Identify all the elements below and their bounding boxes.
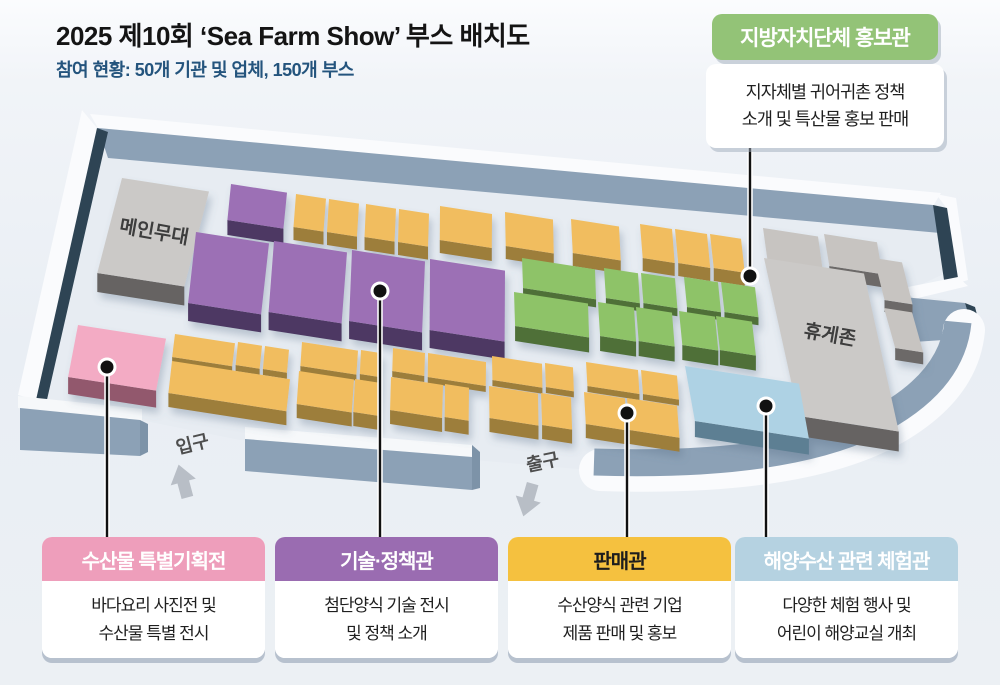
info-box-line1: 지자체별 귀어귀촌 정책 bbox=[746, 79, 905, 106]
legend-card-line1: 바다요리 사진전 및 bbox=[91, 592, 216, 619]
info-box-body: 지자체별 귀어귀촌 정책 소개 및 특산물 홍보 판매 bbox=[706, 64, 944, 148]
booth-block-green bbox=[636, 307, 675, 362]
booth-block-purple bbox=[188, 232, 269, 332]
legend-card-line1: 다양한 체험 행사 및 bbox=[782, 592, 910, 619]
legend-card-line2: 및 정책 소개 bbox=[346, 620, 427, 647]
booth-block-yellow bbox=[505, 212, 554, 266]
booth-block-yellow bbox=[398, 209, 429, 260]
legend-card-body: 첨단양식 기술 전시 및 정책 소개 bbox=[275, 581, 498, 658]
booth-block-yellow bbox=[263, 346, 289, 379]
info-box-header: 지방자치단체 홍보관 bbox=[712, 14, 938, 60]
booth-block-yellow bbox=[489, 386, 538, 440]
callout-dot bbox=[760, 400, 773, 413]
infographic-page: 2025 제10회 ‘Sea Farm Show’ 부스 배치도 참여 현황: … bbox=[0, 0, 1000, 685]
legend-card-experience: 해양수산 관련 체험관 다양한 체험 행사 및 어린이 해양교실 개최 bbox=[735, 537, 958, 658]
booth-block-yellow bbox=[327, 199, 359, 250]
booth-block-yellow bbox=[627, 398, 679, 452]
callout-dot bbox=[374, 285, 387, 298]
booth-block-yellow bbox=[236, 342, 262, 375]
booth-block-yellow bbox=[390, 377, 443, 432]
legend-card-body: 바다요리 사진전 및 수산물 특별 전시 bbox=[42, 581, 265, 658]
legend-card-line2: 제품 판매 및 홍보 bbox=[563, 620, 677, 647]
booth-block-yellow bbox=[365, 204, 396, 255]
callout-dot bbox=[621, 407, 634, 420]
legend-card-body: 수산양식 관련 기업 제품 판매 및 홍보 bbox=[508, 581, 731, 658]
legend-card-header: 수산물 특별기획전 bbox=[42, 537, 265, 581]
booth-block-pink bbox=[68, 325, 166, 408]
booth-block-yellow bbox=[353, 379, 381, 430]
booth-block-purple bbox=[349, 250, 425, 350]
legend-card-line1: 첨단양식 기술 전시 bbox=[324, 592, 449, 619]
legend-card-body: 다양한 체험 행사 및 어린이 해양교실 개최 bbox=[735, 581, 958, 658]
legend-card-special-exhibit: 수산물 특별기획전 바다요리 사진전 및 수산물 특별 전시 bbox=[42, 537, 265, 658]
booth-block-yellow bbox=[571, 219, 621, 273]
info-box-line2: 소개 및 특산물 홍보 판매 bbox=[742, 106, 908, 133]
booth-block-green bbox=[679, 311, 718, 366]
callout-dot bbox=[101, 361, 114, 374]
legend-card-title: 기술·정책관 bbox=[340, 545, 433, 574]
booth-block-purple bbox=[269, 241, 347, 341]
booth-block-purple bbox=[430, 259, 505, 360]
legend-card-line2: 어린이 해양교실 개최 bbox=[777, 620, 916, 647]
booth-block-yellow bbox=[293, 194, 326, 245]
booth-block-yellow bbox=[545, 363, 574, 397]
exit-arrow-icon bbox=[511, 480, 545, 520]
legend-card-header: 기술·정책관 bbox=[275, 537, 498, 581]
legend-card-title: 해양수산 관련 체험관 bbox=[764, 545, 930, 574]
legend-card-tech-policy: 기술·정책관 첨단양식 기술 전시 및 정책 소개 bbox=[275, 537, 498, 658]
booth-block-yellow bbox=[392, 348, 425, 382]
legend-card-line1: 수산양식 관련 기업 bbox=[557, 592, 682, 619]
entrance-label: 입구 bbox=[174, 429, 211, 457]
booth-block-yellow bbox=[445, 384, 469, 435]
booth-block-yellow bbox=[710, 234, 745, 286]
callout-dot bbox=[744, 270, 757, 283]
booth-block-green bbox=[716, 316, 756, 371]
booth-block-green bbox=[598, 302, 636, 357]
legend-card-line2: 수산물 특별 전시 bbox=[99, 620, 209, 647]
legend-card-title: 판매관 bbox=[593, 545, 645, 574]
booth-block-yellow bbox=[297, 371, 354, 427]
booth-block-yellow bbox=[440, 206, 492, 261]
legend-card-title: 수산물 특별기획전 bbox=[82, 545, 226, 574]
entrance-arrow-icon bbox=[166, 461, 200, 501]
booth-block-yellow bbox=[640, 224, 675, 276]
info-box-title: 지방자치단체 홍보관 bbox=[740, 22, 910, 52]
legend-card-sales: 판매관 수산양식 관련 기업 제품 판매 및 홍보 bbox=[508, 537, 731, 658]
booth-block-purple bbox=[227, 184, 287, 244]
booth-block-yellow bbox=[675, 229, 710, 281]
booth-block-yellow bbox=[641, 370, 679, 406]
booth-block-yellow bbox=[541, 393, 572, 444]
legend-card-header: 해양수산 관련 체험관 bbox=[735, 537, 958, 581]
legend-card-header: 판매관 bbox=[508, 537, 731, 581]
